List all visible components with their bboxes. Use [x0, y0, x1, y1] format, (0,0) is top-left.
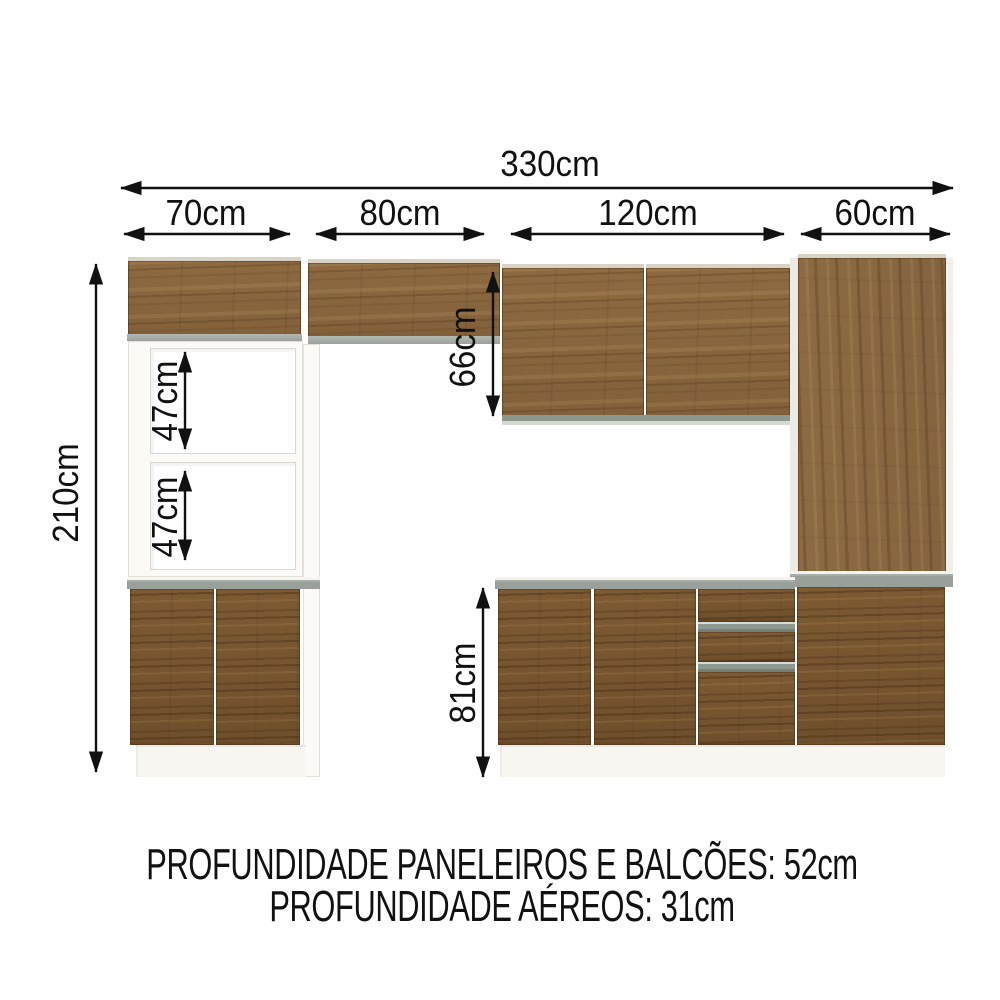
wall-cabinet-height-label: 66cm	[442, 303, 484, 391]
depth-note-wall-cabinets: PROFUNDIDADE AÉREOS: 31cm	[170, 882, 835, 932]
niche-upper-label: 47cm	[144, 357, 186, 445]
section-70-label: 70cm	[162, 192, 250, 234]
niche-lower-label: 47cm	[144, 473, 186, 561]
section-120-label: 120cm	[594, 192, 702, 234]
kitchen-dimension-diagram: 330cm 70cm 80cm 120cm 60cm 210cm 47cm 47…	[0, 0, 1000, 1000]
total-width-label: 330cm	[496, 143, 604, 185]
section-80-label: 80cm	[356, 192, 444, 234]
section-60-label: 60cm	[831, 192, 919, 234]
total-height-label: 210cm	[45, 439, 87, 547]
base-cabinet-height-label: 81cm	[442, 639, 484, 727]
